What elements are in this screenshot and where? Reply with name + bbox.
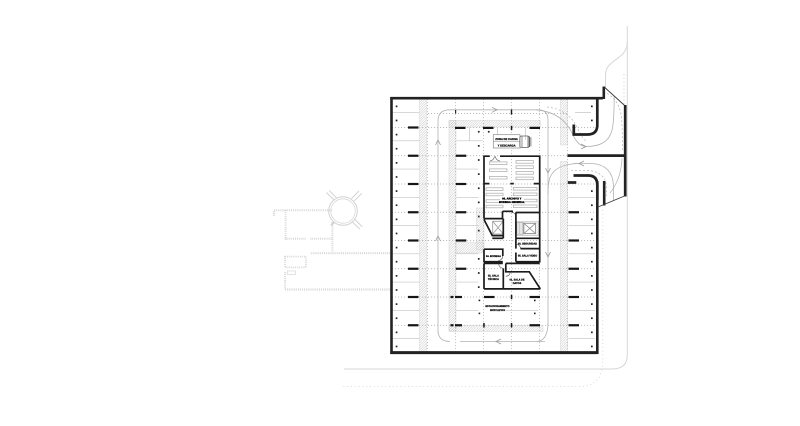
svg-text:02. SALA: 02. SALA [488, 274, 499, 277]
svg-text:DATOS: DATOS [513, 282, 522, 285]
svg-text:ESTACIONAMIENTO: ESTACIONAMIENTO [485, 305, 509, 308]
svg-text:BODEGA GENERAL: BODEGA GENERAL [499, 201, 525, 204]
svg-text:01. SALA DE: 01. SALA DE [509, 278, 524, 281]
svg-text:ZONA DE CARGA: ZONA DE CARGA [495, 138, 518, 141]
svg-text:03. SEGURIDAD: 03. SEGURIDAD [518, 243, 537, 246]
svg-text:06. ARCHIVO Y: 06. ARCHIVO Y [502, 198, 521, 201]
svg-text:04. BODEGA: 04. BODEGA [486, 255, 501, 258]
svg-text:BICICLETAS: BICICLETAS [490, 309, 505, 312]
svg-text:TÉCNICA: TÉCNICA [488, 277, 499, 281]
svg-text:05. SALA VIDEO: 05. SALA VIDEO [518, 255, 537, 258]
svg-text:Y DESCARGA: Y DESCARGA [498, 144, 516, 147]
